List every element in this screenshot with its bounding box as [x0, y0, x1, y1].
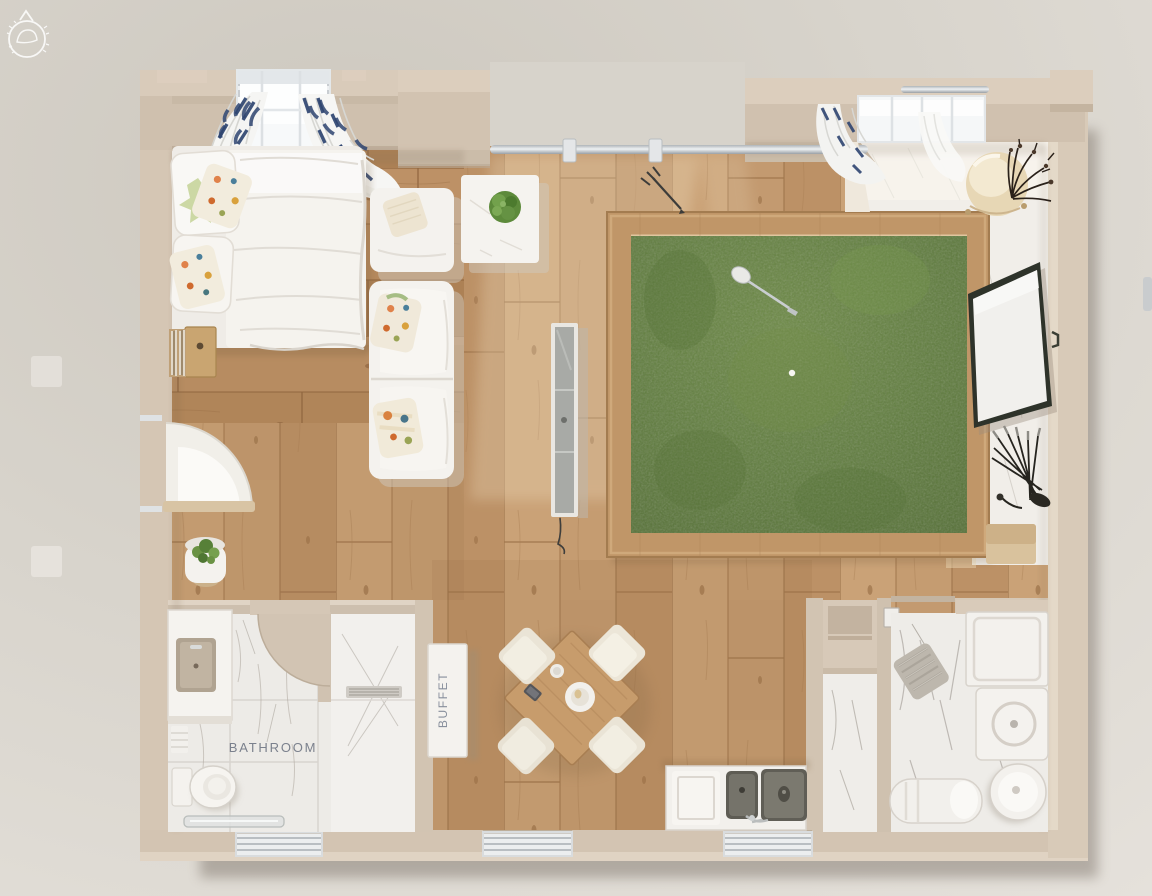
svg-text:BUFFET: BUFFET	[436, 672, 450, 728]
svg-text:BATHROOM: BATHROOM	[229, 740, 318, 755]
